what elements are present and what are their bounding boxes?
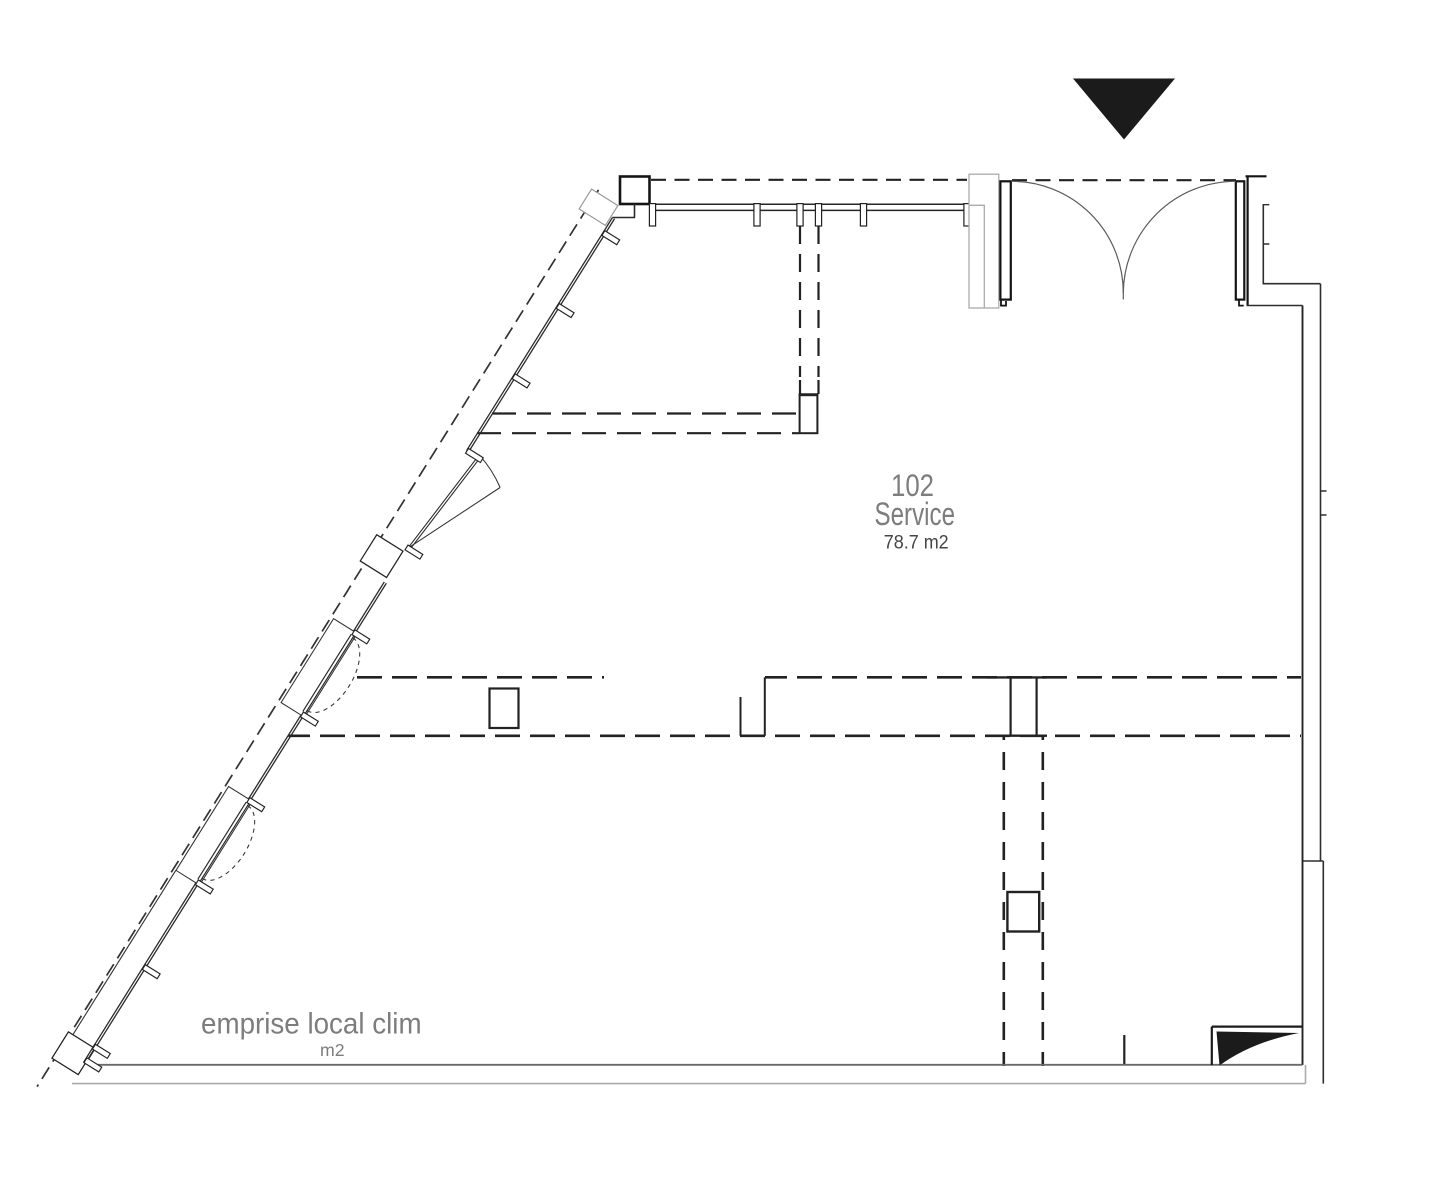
svg-text:m2: m2 xyxy=(320,1040,345,1060)
svg-text:Service: Service xyxy=(875,496,956,532)
svg-text:78.7 m2: 78.7 m2 xyxy=(884,532,949,554)
svg-text:emprise local clim: emprise local clim xyxy=(201,1008,422,1041)
